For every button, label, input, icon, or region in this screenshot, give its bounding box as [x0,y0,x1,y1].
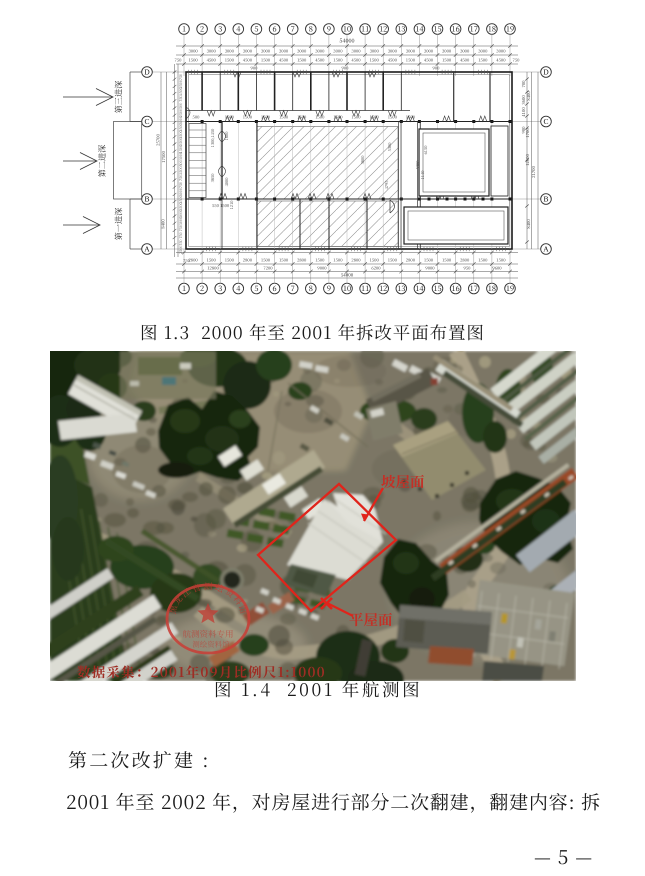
svg-text:750: 750 [179,95,184,101]
svg-text:15: 15 [433,283,441,294]
svg-text:9000: 9000 [425,265,435,271]
svg-text:3000: 3000 [179,152,184,160]
svg-text:3000: 3000 [243,49,253,55]
svg-text:3: 3 [218,24,222,35]
svg-text:4500: 4500 [496,58,506,64]
svg-text:16: 16 [451,283,459,294]
svg-text:平屋面: 平屋面 [349,609,393,630]
svg-text:900: 900 [342,66,350,72]
svg-text:1500: 1500 [388,257,398,263]
svg-text:4500: 4500 [207,58,217,64]
svg-text:4: 4 [236,24,240,35]
svg-text:10: 10 [343,24,351,35]
svg-text:1140: 1140 [420,171,426,180]
svg-text:750: 750 [513,58,521,64]
svg-text:5300: 5300 [415,161,421,170]
svg-text:坡屋面: 坡屋面 [381,471,425,492]
svg-text:2500: 2500 [179,246,184,254]
svg-text:3000: 3000 [225,49,235,55]
svg-text:2500: 2500 [179,87,184,95]
svg-text:700: 700 [521,80,527,88]
svg-text:1500: 1500 [261,257,271,263]
svg-text:750: 750 [183,258,191,264]
svg-text:3000: 3000 [460,49,470,55]
svg-text:3000: 3000 [406,49,416,55]
svg-text:17500: 17500 [161,150,167,162]
svg-text:750: 750 [179,74,184,80]
svg-text:1: 1 [182,283,186,294]
svg-text:2: 2 [200,283,204,294]
svg-text:17: 17 [470,283,478,294]
svg-text:D: D [543,67,549,78]
svg-text:500: 500 [179,160,184,166]
svg-text:3000: 3000 [207,49,217,55]
svg-text:3000: 3000 [188,49,198,55]
svg-text:16: 16 [451,24,459,35]
svg-text:5: 5 [254,283,258,294]
svg-text:1500: 1500 [179,145,184,153]
svg-text:1500: 1500 [279,257,289,263]
svg-text:1800: 1800 [224,132,230,141]
svg-text:3000: 3000 [424,49,434,55]
svg-text:4500: 4500 [424,58,434,64]
svg-text:5: 5 [254,24,258,35]
svg-text:1500: 1500 [370,257,380,263]
svg-text:21700: 21700 [531,165,537,177]
svg-text:750: 750 [179,182,184,188]
svg-text:4500: 4500 [243,58,253,64]
svg-text:1500: 1500 [243,115,253,121]
svg-text:A: A [144,244,150,255]
svg-text:3000: 3000 [388,49,398,55]
svg-text:1500: 1500 [406,58,416,64]
svg-text:7: 7 [291,283,295,294]
svg-text:3000: 3000 [179,116,184,124]
svg-text:900: 900 [251,66,259,72]
svg-text:D: D [144,67,150,78]
svg-text:4500: 4500 [460,58,470,64]
svg-text:1500: 1500 [315,257,325,263]
svg-text:12: 12 [379,24,387,35]
svg-text:6150: 6150 [423,146,429,155]
svg-text:4: 4 [236,283,240,294]
svg-text:18: 18 [488,24,496,35]
svg-text:3000: 3000 [442,49,452,55]
svg-text:19: 19 [506,24,514,35]
svg-text:8: 8 [309,24,313,35]
svg-text:17: 17 [470,24,478,35]
svg-text:3850: 3850 [210,174,216,183]
svg-text:1: 1 [182,24,186,35]
svg-text:750: 750 [179,175,184,181]
svg-text:1500: 1500 [424,257,434,263]
svg-text:6200: 6200 [371,265,381,271]
svg-text:1500: 1500 [225,58,235,64]
svg-text:3000: 3000 [297,49,307,55]
svg-text:1500: 1500 [442,58,452,64]
svg-text:3000: 3000 [478,49,488,55]
svg-text:1500: 1500 [179,130,184,138]
svg-text:8400: 8400 [161,219,167,229]
svg-text:1500: 1500 [478,58,488,64]
svg-text:54000: 54000 [339,37,354,45]
svg-text:4500: 4500 [388,58,398,64]
svg-text:C: C [144,116,149,127]
svg-text:4500: 4500 [351,58,361,64]
svg-text:2800: 2800 [243,257,253,263]
svg-text:1500: 1500 [333,58,343,64]
svg-text:1500: 1500 [315,115,325,121]
svg-text:B: B [144,194,149,205]
svg-text:第一进深: 第一进深 [114,208,125,241]
svg-text:1500: 1500 [496,257,506,263]
svg-text:8: 8 [309,283,313,294]
svg-text:1500: 1500 [442,257,452,263]
svg-text:14: 14 [415,283,423,294]
svg-text:5300: 5300 [387,143,393,152]
svg-text:9600: 9600 [492,265,502,271]
svg-text:3000: 3000 [179,210,184,218]
svg-text:8400: 8400 [526,219,532,229]
svg-text:750: 750 [175,58,183,64]
svg-text:10: 10 [343,283,351,294]
svg-text:3: 3 [218,283,222,294]
svg-text:1210: 1210 [229,201,235,210]
svg-text:13: 13 [397,24,405,35]
svg-text:9000: 9000 [317,265,327,271]
svg-text:4000: 4000 [224,178,230,187]
svg-text:2800: 2800 [297,257,307,263]
svg-text:9: 9 [327,24,331,35]
svg-text:2500: 2500 [179,138,184,146]
svg-text:900: 900 [433,66,441,72]
svg-text:2800: 2800 [188,257,198,263]
svg-text:1500: 1500 [351,115,361,121]
svg-text:3000: 3000 [333,49,343,55]
svg-text:C: C [543,116,548,127]
svg-text:4500: 4500 [315,58,325,64]
svg-text:2500: 2500 [179,80,184,88]
svg-text:750: 750 [179,239,184,245]
svg-text:2500: 2500 [179,202,184,210]
svg-text:3000: 3000 [279,49,289,55]
svg-text:550 1500: 550 1500 [212,203,230,209]
svg-text:2500: 2500 [179,109,184,117]
svg-text:测绘资料馆: 测绘资料馆 [192,639,230,650]
svg-text:1500: 1500 [478,257,488,263]
svg-text:6: 6 [273,283,277,294]
svg-text:3000: 3000 [370,49,380,55]
svg-text:54000: 54000 [341,273,354,279]
svg-text:3000: 3000 [315,49,325,55]
svg-text:9: 9 [327,283,331,294]
svg-text:第二进深: 第二进深 [97,145,108,178]
svg-text:4500: 4500 [279,58,289,64]
svg-text:1500: 1500 [370,58,380,64]
svg-text:3000: 3000 [179,217,184,225]
svg-text:25700: 25700 [156,133,162,145]
svg-text:测: 测 [204,581,213,593]
svg-text:12800: 12800 [207,265,219,271]
svg-text:4795: 4795 [384,181,390,190]
svg-text:1500: 1500 [188,58,198,64]
svg-text:14: 14 [415,24,423,35]
svg-text:7200: 7200 [263,265,273,271]
svg-text:B: B [543,194,548,205]
svg-text:750: 750 [179,225,184,231]
svg-text:1500: 1500 [279,115,289,121]
svg-text:1500: 1500 [297,58,307,64]
svg-text:1500: 1500 [333,257,343,263]
svg-text:3000: 3000 [496,49,506,55]
svg-text:2800: 2800 [406,257,416,263]
svg-text:1300,1450: 1300,1450 [210,129,216,148]
svg-text:12: 12 [379,283,387,294]
svg-text:15: 15 [433,24,441,35]
svg-text:2800: 2800 [351,257,361,263]
svg-text:13: 13 [397,283,405,294]
svg-text:3800: 3800 [360,156,366,165]
svg-text:12600: 12600 [525,153,531,165]
svg-text:500: 500 [179,103,184,109]
svg-text:7: 7 [291,24,295,35]
svg-text:2: 2 [200,24,204,35]
svg-text:1500: 1500 [225,257,235,263]
svg-text:第三进深: 第三进深 [114,81,125,114]
svg-text:750: 750 [179,232,184,238]
svg-text:2500: 2500 [179,166,184,174]
svg-text:2800: 2800 [460,257,470,263]
svg-text:3000: 3000 [179,188,184,196]
svg-text:11: 11 [361,283,369,294]
svg-text:2500: 2500 [179,195,184,203]
svg-text:1500: 1500 [207,257,217,263]
svg-text:A: A [543,244,549,255]
svg-text:1500: 1500 [261,58,271,64]
svg-text:2500: 2500 [179,123,184,131]
svg-text:500: 500 [193,115,201,121]
svg-text:11: 11 [361,24,369,35]
svg-text:950: 950 [464,265,472,271]
svg-text:4100: 4100 [521,107,527,117]
svg-text:6: 6 [273,24,277,35]
svg-text:3000: 3000 [351,49,361,55]
svg-text:18: 18 [488,283,496,294]
svg-text:1500: 1500 [388,115,398,121]
svg-text:19: 19 [506,283,514,294]
svg-text:3000: 3000 [261,49,271,55]
